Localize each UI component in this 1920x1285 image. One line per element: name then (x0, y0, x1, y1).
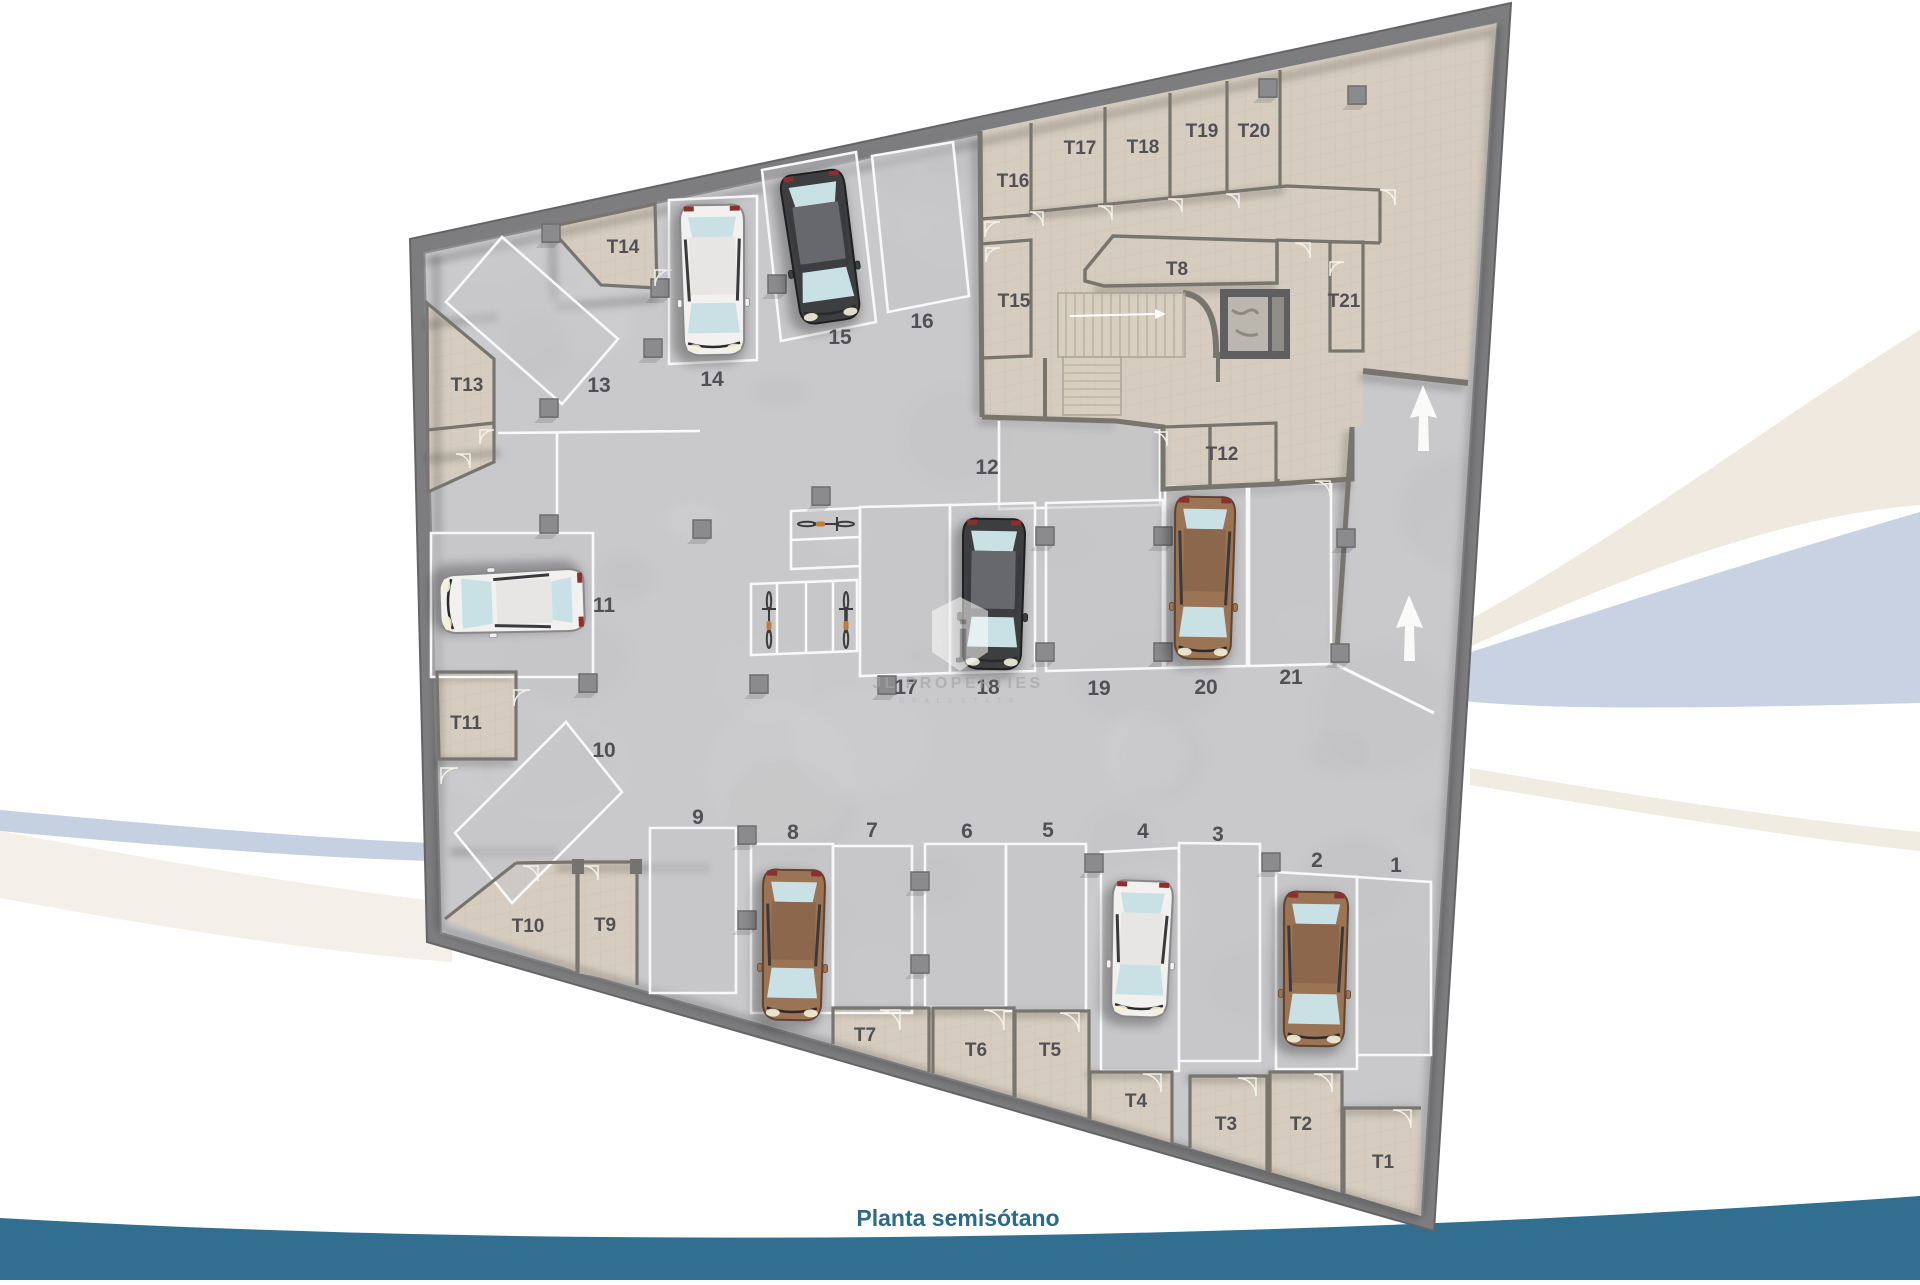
svg-text:12: 12 (975, 456, 998, 479)
svg-text:14: 14 (700, 368, 724, 391)
svg-text:3: 3 (1212, 823, 1224, 846)
svg-text:T11: T11 (450, 713, 482, 734)
svg-text:T4: T4 (1125, 1091, 1148, 1112)
svg-text:T3: T3 (1215, 1114, 1237, 1135)
svg-text:4: 4 (1137, 820, 1149, 843)
svg-text:T9: T9 (594, 915, 616, 936)
svg-text:1: 1 (1390, 854, 1402, 877)
svg-text:T21: T21 (1328, 291, 1361, 312)
svg-text:9: 9 (692, 806, 704, 829)
svg-text:R E A L E S T A T E: R E A L E S T A T E (899, 698, 1017, 705)
svg-text:T12: T12 (1206, 444, 1239, 465)
svg-text:T14: T14 (607, 237, 640, 258)
svg-text:T5: T5 (1039, 1040, 1062, 1061)
svg-text:7: 7 (866, 819, 878, 842)
svg-text:JL PROPERTIES: JL PROPERTIES (872, 675, 1043, 692)
svg-text:T6: T6 (965, 1040, 987, 1061)
svg-text:19: 19 (1087, 677, 1110, 700)
svg-text:2: 2 (1311, 849, 1323, 872)
svg-text:T1: T1 (1372, 1152, 1395, 1173)
svg-text:j: j (956, 611, 970, 663)
svg-text:21: 21 (1279, 666, 1303, 689)
svg-text:10: 10 (592, 739, 615, 762)
svg-text:T19: T19 (1186, 121, 1219, 142)
svg-text:8: 8 (787, 821, 799, 844)
svg-text:20: 20 (1194, 676, 1217, 699)
svg-text:T7: T7 (854, 1025, 876, 1046)
svg-text:13: 13 (587, 374, 610, 397)
svg-text:T10: T10 (512, 916, 545, 937)
svg-text:11: 11 (593, 594, 616, 617)
svg-text:T16: T16 (997, 171, 1030, 192)
svg-text:T20: T20 (1238, 121, 1271, 142)
svg-text:T15: T15 (998, 291, 1031, 312)
svg-text:T18: T18 (1127, 137, 1160, 158)
svg-text:5: 5 (1042, 819, 1054, 842)
svg-text:T8: T8 (1166, 259, 1188, 280)
svg-text:T17: T17 (1064, 138, 1097, 159)
svg-text:Planta semisótano: Planta semisótano (856, 1205, 1059, 1231)
svg-text:15: 15 (828, 326, 852, 349)
svg-text:6: 6 (961, 820, 973, 843)
svg-text:T2: T2 (1290, 1114, 1312, 1135)
svg-text:16: 16 (910, 310, 933, 333)
svg-text:T13: T13 (451, 375, 484, 396)
